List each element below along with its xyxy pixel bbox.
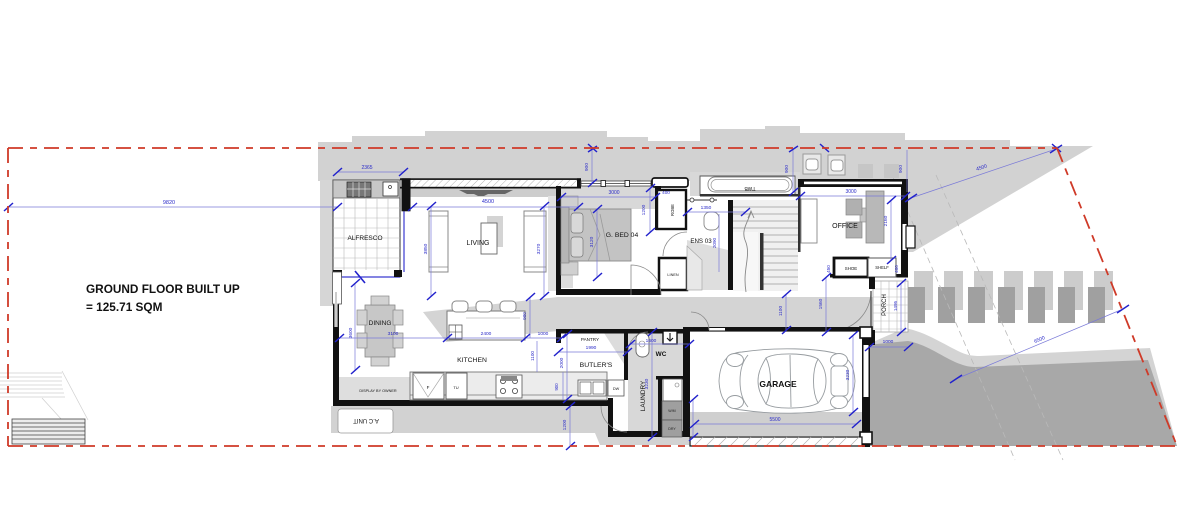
svg-text:1200: 1200: [641, 204, 647, 215]
svg-text:400: 400: [894, 265, 899, 273]
svg-text:PORCH: PORCH: [882, 294, 888, 316]
svg-text:6500: 6500: [1033, 335, 1046, 345]
svg-text:OFFICE: OFFICE: [832, 223, 858, 230]
svg-text:1000: 1000: [538, 331, 549, 337]
svg-text:WC: WC: [656, 351, 667, 358]
svg-text:2160: 2160: [883, 215, 889, 226]
svg-text:DISPLAY BY OWNER: DISPLAY BY OWNER: [359, 389, 397, 393]
svg-text:DINING: DINING: [369, 320, 392, 327]
svg-text:900: 900: [554, 383, 559, 391]
svg-text:LINEN: LINEN: [667, 273, 678, 277]
svg-text:3230: 3230: [845, 369, 851, 380]
svg-text:ENS 03: ENS 03: [690, 238, 712, 245]
svg-text:5500: 5500: [769, 417, 780, 423]
svg-text:1100: 1100: [778, 306, 784, 317]
svg-text:2090: 2090: [712, 237, 717, 248]
svg-text:900: 900: [522, 312, 527, 320]
svg-text:DW: DW: [613, 387, 620, 391]
svg-text:TU: TU: [453, 385, 458, 390]
svg-text:ALFRESCO: ALFRESCO: [347, 235, 382, 242]
svg-text:W/M: W/M: [668, 409, 675, 413]
svg-text:1000: 1000: [883, 339, 894, 345]
svg-text:2400: 2400: [481, 331, 492, 337]
svg-text:9820: 9820: [163, 200, 175, 206]
svg-text:3270: 3270: [536, 243, 542, 254]
svg-text:SHOE: SHOE: [845, 266, 858, 271]
svg-text:2365: 2365: [361, 165, 372, 171]
svg-text:BUTLER'S: BUTLER'S: [580, 362, 613, 369]
svg-text:SHELF: SHELF: [875, 265, 889, 270]
svg-text:TWB: TWB: [744, 185, 756, 191]
svg-text:900: 900: [898, 165, 904, 173]
svg-text:900: 900: [784, 165, 790, 173]
svg-text:= 125.71 SQM: = 125.71 SQM: [86, 300, 163, 314]
svg-text:1100: 1100: [530, 351, 535, 361]
svg-text:G. BED 04: G. BED 04: [606, 232, 639, 239]
svg-text:F: F: [427, 385, 430, 390]
svg-text:PANTRY: PANTRY: [581, 337, 599, 342]
svg-text:3000: 3000: [608, 190, 619, 196]
svg-text:3120: 3120: [589, 236, 595, 247]
svg-text:LIVING: LIVING: [467, 240, 490, 247]
svg-text:3850: 3850: [423, 243, 429, 254]
svg-text:1350: 1350: [701, 205, 712, 211]
svg-text:ROBE: ROBE: [670, 204, 675, 216]
svg-text:DRY: DRY: [668, 427, 676, 431]
svg-text:4500: 4500: [482, 199, 494, 205]
svg-text:LAUNDRY: LAUNDRY: [640, 380, 647, 411]
svg-text:3100: 3100: [388, 331, 399, 337]
svg-text:900: 900: [584, 163, 590, 171]
svg-text:400: 400: [662, 190, 670, 195]
svg-text:KITCHEN: KITCHEN: [457, 357, 487, 364]
svg-text:3600: 3600: [348, 327, 354, 338]
svg-text:GARAGE: GARAGE: [759, 379, 797, 389]
svg-text:1200: 1200: [562, 419, 568, 430]
svg-text:1560: 1560: [818, 298, 824, 309]
svg-text:1990: 1990: [586, 345, 597, 351]
svg-text:3000: 3000: [845, 189, 856, 195]
svg-text:GROUND FLOOR BUILT UP: GROUND FLOOR BUILT UP: [86, 282, 240, 296]
svg-text:1495: 1495: [893, 300, 898, 311]
svg-text:2000: 2000: [559, 357, 565, 368]
svg-text:A.C UNIT: A.C UNIT: [353, 417, 379, 423]
svg-text:450: 450: [826, 265, 831, 273]
svg-text:1600: 1600: [646, 338, 657, 344]
